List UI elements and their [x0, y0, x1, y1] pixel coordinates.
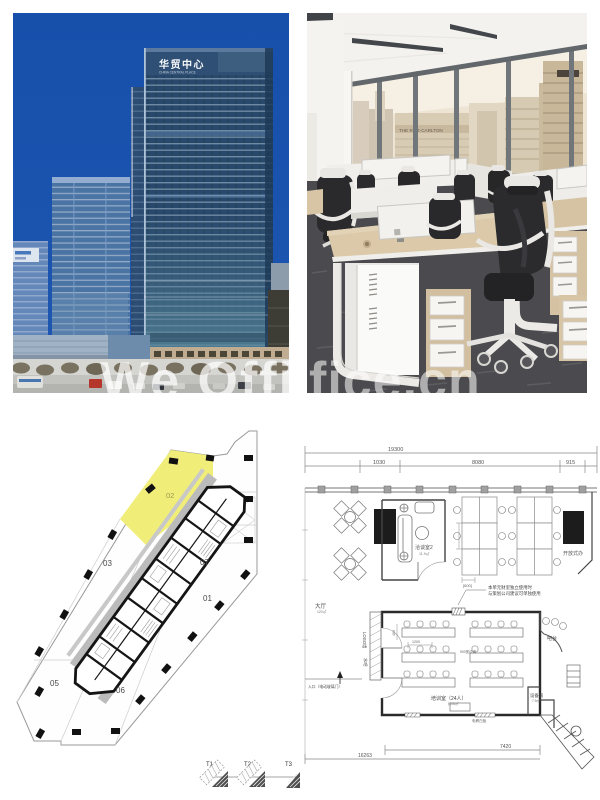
svg-text:fice.cn: fice.cn [309, 352, 481, 393]
svg-text:19300: 19300 [388, 447, 403, 453]
svg-text:CHINA CENTRAL PLACE: CHINA CENTRAL PLACE [159, 71, 196, 75]
svg-text:华贸中心: 华贸中心 [159, 58, 205, 71]
svg-text:THE RITZ-CARLTON: THE RITZ-CARLTON [399, 128, 443, 133]
svg-text:05: 05 [50, 679, 59, 688]
svg-text:02: 02 [166, 491, 174, 500]
svg-text:与策划公司建议可单独使用: 与策划公司建议可单独使用 [488, 590, 541, 597]
svg-text:水吧: 水吧 [363, 658, 369, 667]
svg-text:8080: 8080 [472, 460, 484, 466]
svg-text:T3: T3 [285, 762, 293, 768]
svg-text:01: 01 [203, 594, 212, 603]
svg-text:7420: 7420 [500, 744, 511, 750]
svg-text:电教白板: 电教白板 [472, 718, 487, 723]
svg-text:开放式办: 开放式办 [563, 550, 583, 557]
svg-text:[600]: [600] [463, 583, 472, 588]
svg-text:915: 915 [566, 460, 575, 466]
svg-text:16263: 16263 [358, 753, 372, 759]
svg-text:We Office.cn: We Office.cn [100, 352, 289, 393]
svg-text:1200: 1200 [412, 640, 420, 644]
svg-text:本单元财室独立使用时: 本单元财室独立使用时 [488, 584, 533, 591]
svg-text:03: 03 [103, 559, 112, 568]
svg-text:约56㎡: 约56㎡ [448, 701, 459, 706]
svg-text:06: 06 [116, 686, 125, 695]
svg-text:洽谈室2: 洽谈室2 [415, 544, 433, 551]
svg-text:培训室（24人）: 培训室（24人） [431, 695, 467, 702]
svg-text:7.9㎡: 7.9㎡ [532, 698, 540, 703]
svg-text:大厅: 大厅 [315, 602, 327, 610]
svg-text:07: 07 [200, 558, 209, 567]
svg-text:设备间: 设备间 [530, 692, 543, 699]
svg-text:120㎡: 120㎡ [317, 609, 327, 614]
svg-text:11.9㎡: 11.9㎡ [419, 551, 430, 556]
svg-text:LOGO墙: LOGO墙 [361, 632, 368, 648]
svg-text:吧台: 吧台 [547, 635, 557, 642]
svg-text:入口（电动玻璃门）: 入口（电动玻璃门） [308, 684, 342, 689]
svg-text:1030: 1030 [373, 460, 385, 466]
svg-text:400: 400 [392, 630, 396, 636]
svg-text:900宽过道: 900宽过道 [460, 649, 476, 654]
